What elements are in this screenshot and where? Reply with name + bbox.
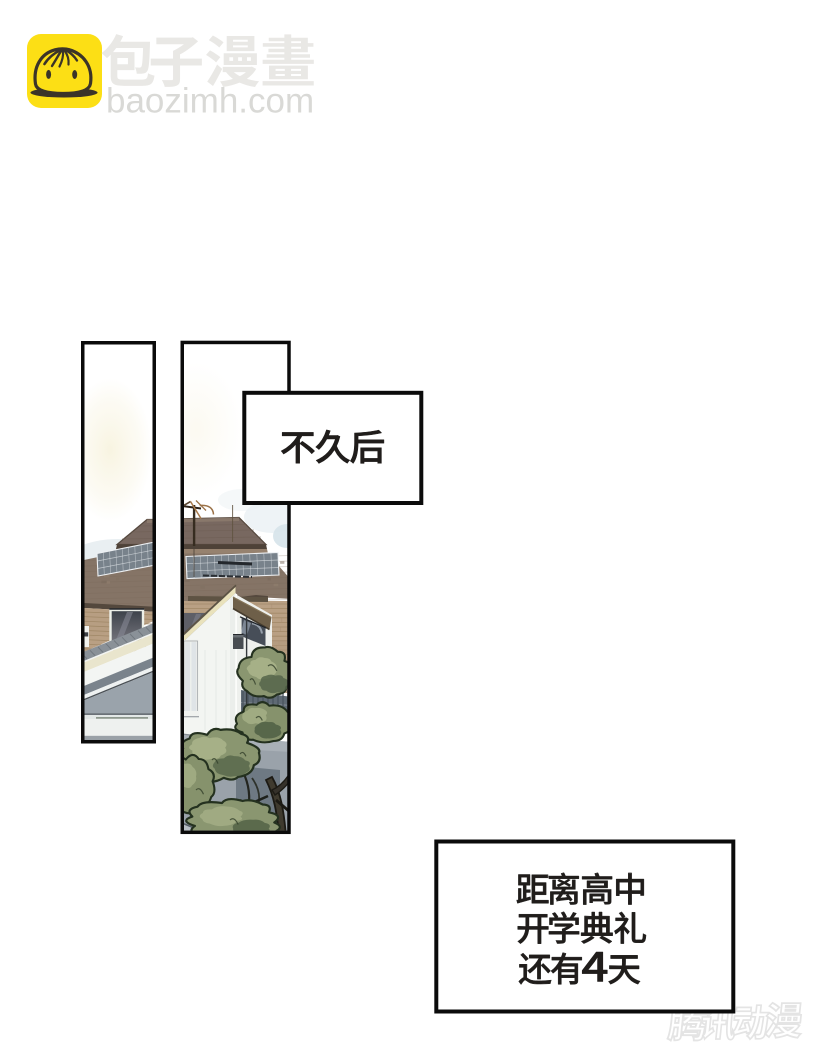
svg-text:baozimh.com: baozimh.com [106,82,314,121]
